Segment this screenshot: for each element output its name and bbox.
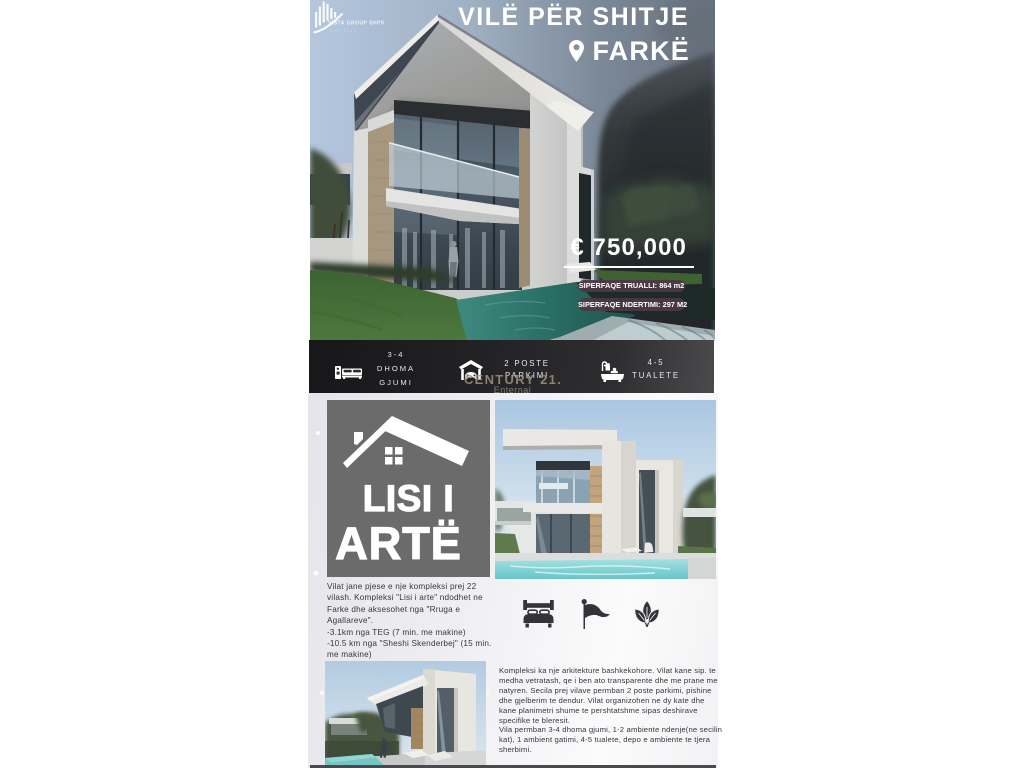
svg-text:EST 2003: EST 2003: [331, 29, 357, 33]
svg-text:VISTA GROUP SHPK: VISTA GROUP SHPK: [328, 21, 385, 27]
